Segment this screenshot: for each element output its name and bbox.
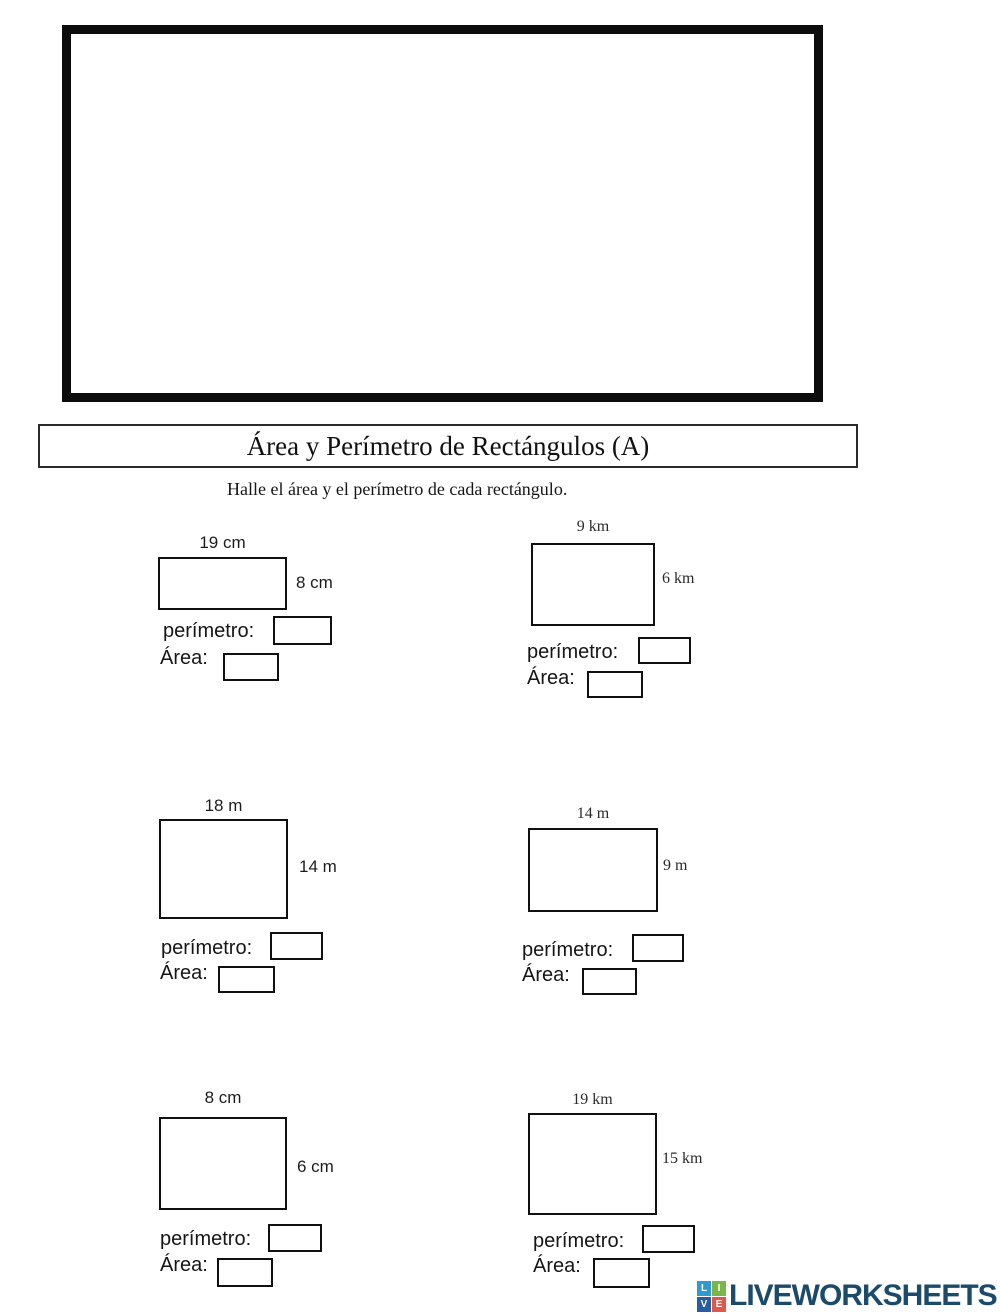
area-label: Área: [160,1254,208,1277]
perimeter-label: perímetro: [527,641,618,664]
area-label: Área: [160,647,208,670]
perimeter-label: perímetro: [161,937,252,960]
width-label: 18 m [159,796,288,816]
liveworksheets-logo[interactable]: L I V E LIVEWORKSHEETS [697,1278,993,1314]
problem-rectangle [159,819,288,919]
problem-rectangle [531,543,655,626]
problem-rectangle [528,1113,657,1215]
liveworksheets-text: LIVEWORKSHEETS [729,1280,997,1312]
height-label: 9 m [663,857,687,875]
area-label: Área: [533,1255,581,1278]
area-input[interactable] [217,1258,273,1287]
area-label: Área: [527,667,575,690]
area-input[interactable] [582,968,637,995]
logo-tile-l-icon: L [697,1281,711,1296]
perimeter-input[interactable] [642,1225,695,1253]
area-input[interactable] [593,1258,650,1288]
logo-tile-e-icon: E [712,1297,726,1312]
area-label: Área: [522,964,570,987]
instruction-text: Halle el área y el perímetro de cada rec… [227,479,567,500]
height-label: 8 cm [296,573,333,593]
logo-tile-v-icon: V [697,1297,711,1312]
height-label: 14 m [299,857,337,877]
perimeter-input[interactable] [638,637,691,664]
top-blank-frame [62,25,823,402]
height-label: 6 km [662,570,694,588]
width-label: 9 km [531,518,655,536]
perimeter-input[interactable] [273,616,332,645]
problem-rectangle [528,828,658,912]
perimeter-input[interactable] [268,1224,322,1252]
width-label: 14 m [528,805,658,823]
width-label: 19 cm [158,533,287,553]
height-label: 15 km [662,1150,702,1168]
perimeter-input[interactable] [270,932,323,960]
area-input[interactable] [223,653,279,681]
perimeter-input[interactable] [632,934,684,962]
area-label: Área: [160,962,208,985]
area-input[interactable] [587,671,643,698]
width-label: 8 cm [159,1088,287,1108]
problem-rectangle [158,557,287,610]
worksheet-page: Área y Perímetro de Rectángulos (A) Hall… [0,0,1000,1316]
perimeter-label: perímetro: [533,1230,624,1253]
problem-rectangle [159,1117,287,1210]
height-label: 6 cm [297,1157,334,1177]
logo-tile-i-icon: I [712,1281,726,1296]
area-input[interactable] [218,966,275,993]
perimeter-label: perímetro: [163,620,254,643]
title-bar: Área y Perímetro de Rectángulos (A) [38,424,858,468]
perimeter-label: perímetro: [522,939,613,962]
perimeter-label: perímetro: [160,1228,251,1251]
width-label: 19 km [528,1091,657,1109]
page-title: Área y Perímetro de Rectángulos (A) [247,431,650,462]
